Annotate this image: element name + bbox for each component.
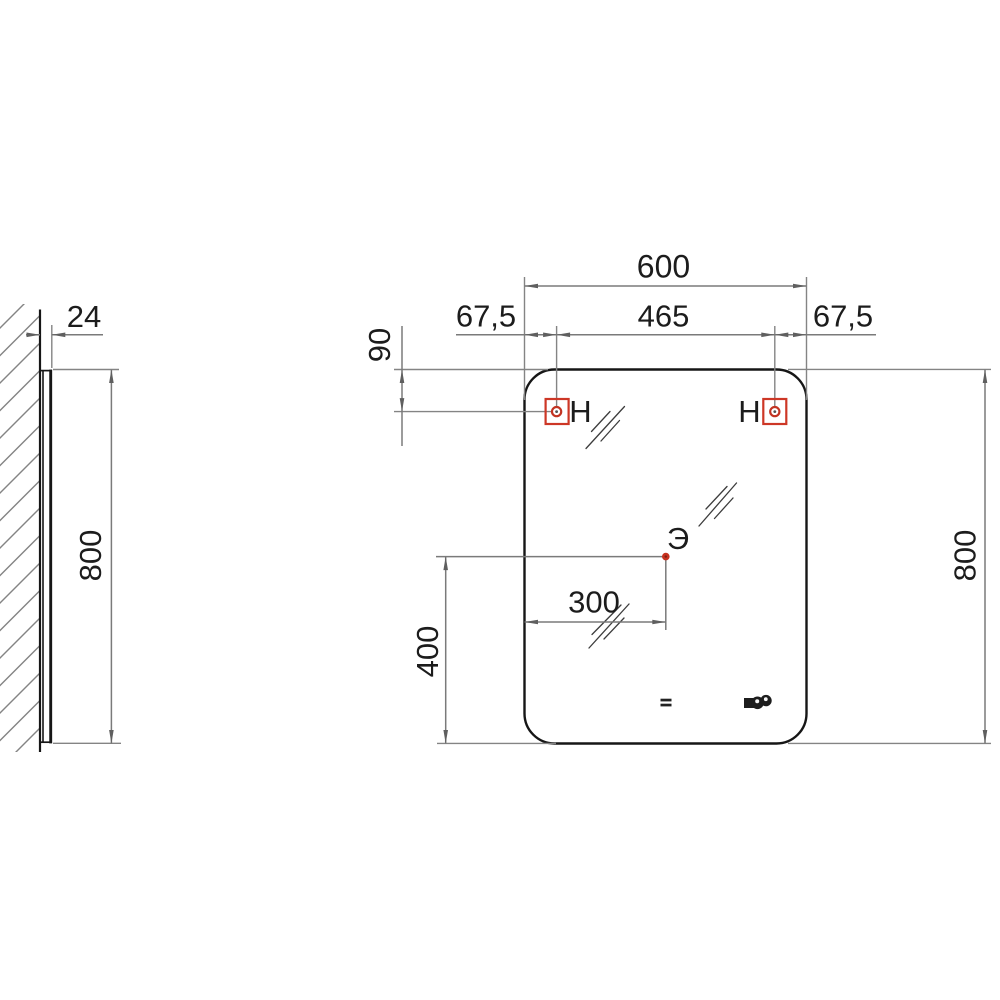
svg-text:465: 465 [638,299,690,334]
svg-text:67,5: 67,5 [456,299,516,334]
svg-text:800: 800 [948,530,983,582]
svg-text:300: 300 [568,585,620,620]
svg-text:90: 90 [362,328,397,362]
svg-text:H: H [569,394,591,429]
svg-text:67,5: 67,5 [813,299,873,334]
svg-text:400: 400 [410,626,445,678]
svg-text:H: H [738,394,760,429]
svg-text:Э: Э [667,521,689,556]
svg-text:800: 800 [73,530,108,582]
svg-text:24: 24 [67,299,101,334]
svg-text:600: 600 [637,249,690,285]
